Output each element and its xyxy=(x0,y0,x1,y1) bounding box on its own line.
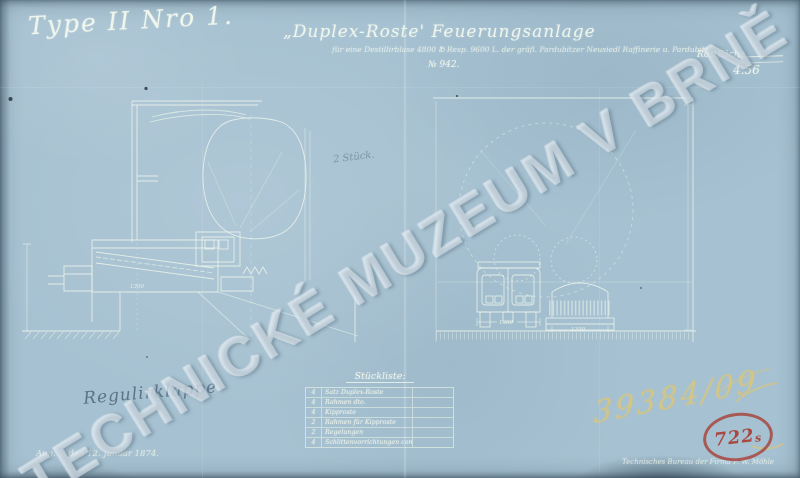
note-cell xyxy=(413,388,453,397)
side-view-drawing: 1300 xyxy=(22,101,358,345)
table-row: 4Satz Duplex-Roste xyxy=(306,388,453,397)
table-row: 2Regelungen xyxy=(306,427,453,437)
flue-circle-right xyxy=(551,237,597,283)
front-view-drawing: 1300 1350 xyxy=(433,98,696,342)
note-cell xyxy=(413,418,453,427)
still-outline-circle xyxy=(459,123,633,297)
qty-cell: 2 xyxy=(306,428,322,437)
blueprint-sheet: Type II Nro 1. „Duplex-Roste' Feuerungsa… xyxy=(0,0,800,478)
stamp-number: 722 xyxy=(713,425,756,451)
qty-cell: 4 xyxy=(306,398,322,407)
qty-cell: 2 xyxy=(306,418,322,427)
qty-cell: 4 xyxy=(306,438,322,447)
qty-cell: 4 xyxy=(306,408,322,417)
table-row: 4Kipproste xyxy=(306,407,453,417)
note-cell xyxy=(413,438,453,447)
name-cell: Kipproste xyxy=(322,408,413,417)
paper-specks xyxy=(9,87,643,358)
name-cell: Rahmen für Kipproste xyxy=(322,418,413,427)
table-row: 2Rahmen für Kipproste xyxy=(306,417,453,427)
parts-list: Stückliste: 4Satz Duplex-Roste 4Rahmen d… xyxy=(305,371,455,448)
name-cell: Satz Duplex-Roste xyxy=(322,388,413,397)
table-row: 4Schlittenvorrichtungen complett xyxy=(306,437,453,447)
front-right-dimension-label: 1350 xyxy=(571,327,585,333)
flue-circle-left xyxy=(494,235,540,281)
side-dimension-label: 1300 xyxy=(130,284,144,290)
note-cell xyxy=(413,398,453,407)
qty-cell: 4 xyxy=(306,388,322,397)
name-cell: Schlittenvorrichtungen complett xyxy=(322,438,413,447)
stamp-suffix: s xyxy=(754,431,763,445)
front-left-dimension-label: 1300 xyxy=(499,320,513,326)
name-cell: Regelungen xyxy=(322,428,413,437)
parts-list-table: 4Satz Duplex-Roste 4Rahmen dto. 4Kippros… xyxy=(305,387,454,448)
note-cell xyxy=(413,408,453,417)
note-cell xyxy=(413,428,453,437)
name-cell: Rahmen dto. xyxy=(322,398,413,407)
table-row: 4Rahmen dto. xyxy=(306,397,453,407)
parts-list-title: Stückliste: xyxy=(346,371,414,383)
